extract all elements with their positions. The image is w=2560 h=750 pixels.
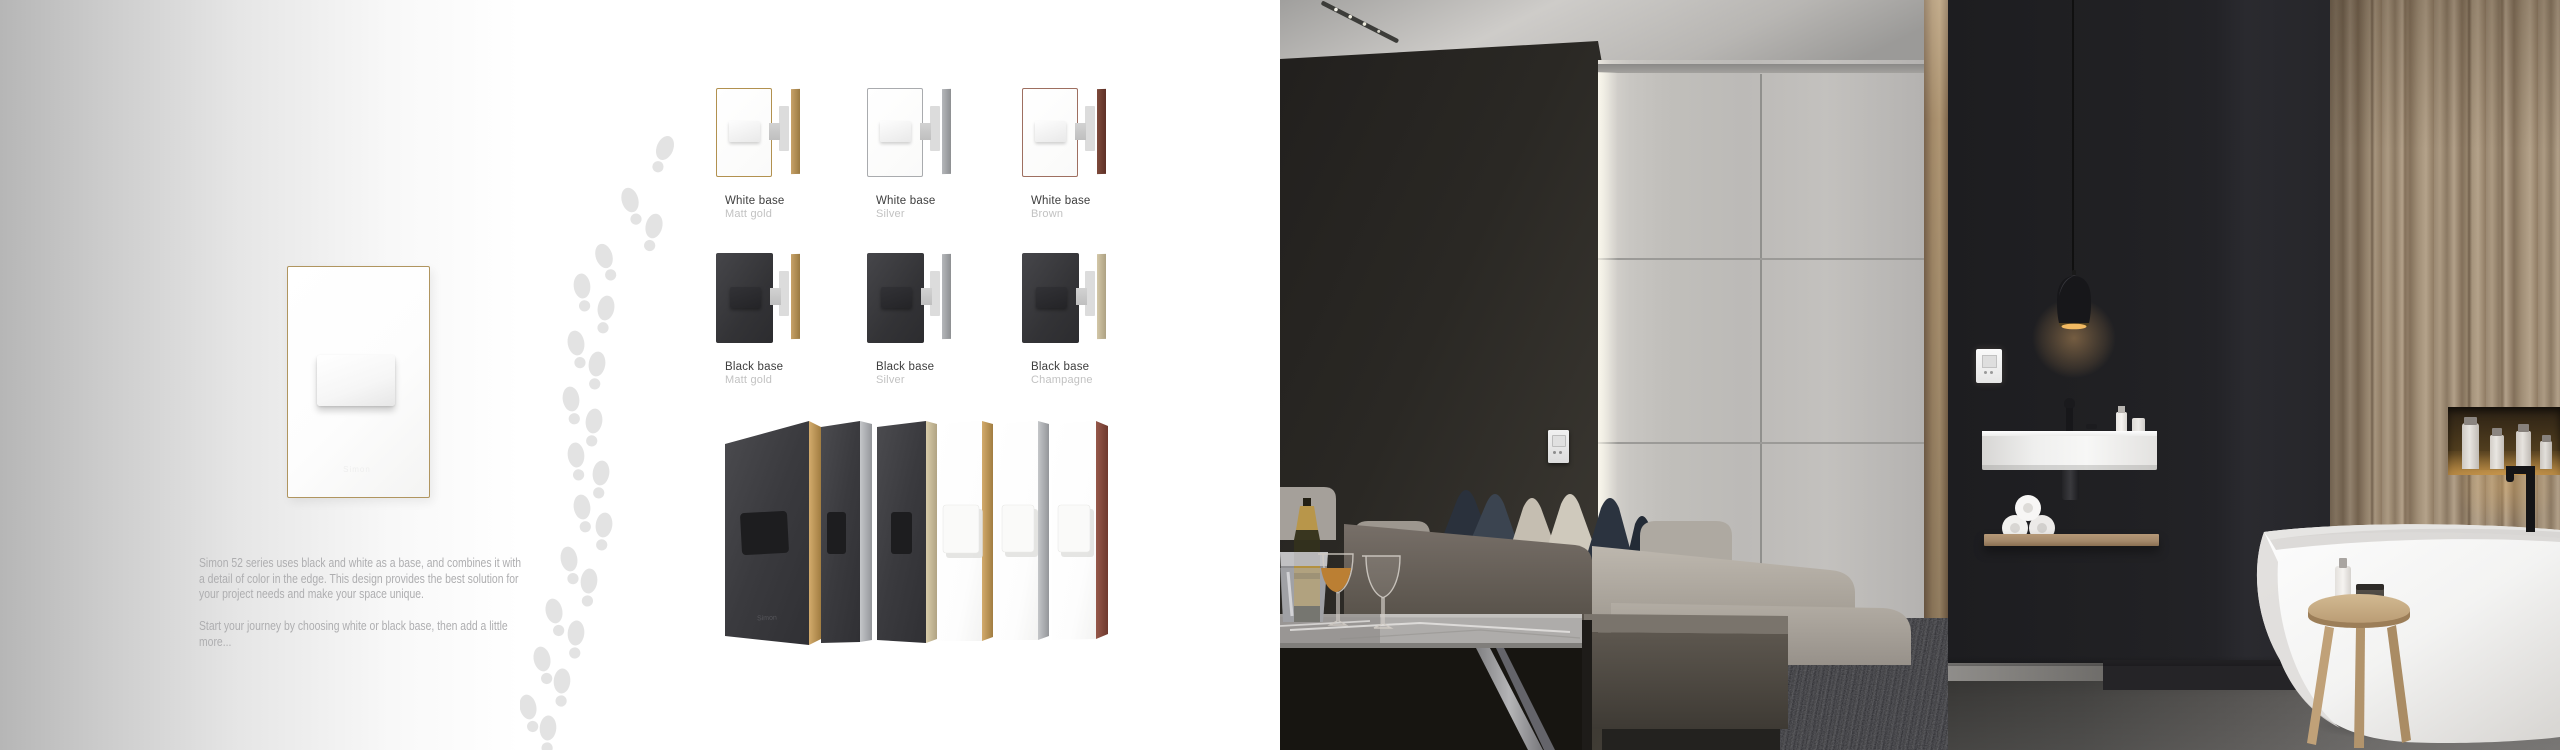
svg-text:Simon: Simon [757, 615, 777, 623]
